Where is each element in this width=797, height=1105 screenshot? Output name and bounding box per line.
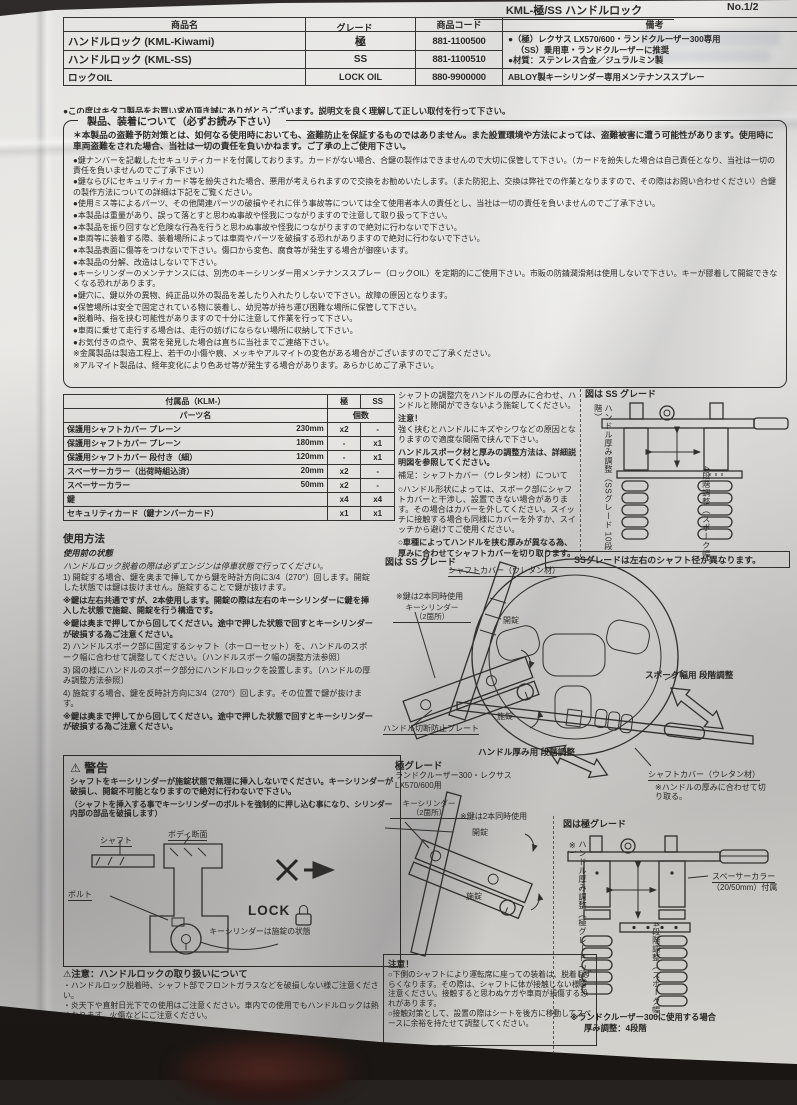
- part-name: スペーサーカラー（出荷時組込済）: [67, 467, 194, 476]
- bolt-label: ボルト: [68, 890, 92, 901]
- spacer-collar-label: スペーサーカラー （20/50mm）付属: [712, 872, 797, 892]
- notice-item: ＊本製品の盗難予防対策とは、如何なる使用時においても、盗難防止を保証するものでは…: [73, 130, 780, 153]
- lock-label-kiwami: 施錠: [466, 892, 482, 901]
- notice-item: ●本製品表面に傷等をつけないで下さい。傷口から変色、腐食等が発生する場合が御座い…: [73, 246, 780, 256]
- product-name: ロックOIL: [64, 69, 306, 86]
- usage-step: 1) 開錠する場合、鍵を奥まで挿してから鍵を時計方向に3/4（270°）回します…: [63, 573, 375, 594]
- warning-subtext: （シャフトを挿入する事でキーシリンダーのボルトを強制的に押し込む事になり、シリン…: [70, 800, 395, 820]
- shaft-cover-label-2: シャフトカバー（ウレタン材）: [648, 770, 760, 781]
- caution-handling-list: ・ハンドルロック脱着時、シャフト部でフロントガラスなどを破損しない様ご注意くださ…: [63, 981, 385, 1021]
- parts-col-kiwami: 極: [327, 395, 361, 409]
- parts-row: スペーサーカラー50mm x2 -: [64, 479, 395, 493]
- warning-text: シャフトをキーシリンダーが施錠状態で無理に挿入しないでください。キーシリンダーが…: [70, 777, 395, 798]
- notice-box-title: 製品、装着について（必ずお読み下さい）: [78, 113, 286, 128]
- parts-rows: 保護用シャフトカバー プレーン230mm x2 - 保護用シャフトカバー プレー…: [64, 423, 395, 521]
- ss-mechanism-diagram: [592, 397, 792, 555]
- notice-item: ※アルマイト製品は、経年変化により色あせ等が発生する場合があります。あらかじめご…: [73, 361, 780, 371]
- product-code: 881-1100500: [416, 32, 503, 51]
- product-remarks: ●（極）レクサス LX570/600・ランドクルーザー300専用 （SS）乗用車…: [503, 32, 797, 69]
- lock-label: LOCK: [248, 903, 290, 919]
- part-qty-ss: -: [361, 423, 395, 437]
- notice-item: ●鍵ならびにセキュリティカード等を紛失された場合、悪用が考えられますので交換をお…: [73, 177, 780, 197]
- kiwami-thickness-adjust-label: ハンドル厚み調整（極グレード 7段階※）: [566, 840, 587, 995]
- kiwami-mechanism-diagram: [560, 828, 790, 1020]
- cut-to-thickness-note: ※ハンドルの厚みに合わせて切り取る。: [655, 783, 773, 801]
- notice-item: ●本製品の分解、改造はしないで下さい。: [73, 258, 780, 268]
- notice-item: ●車両等に装着する際、装着場所によっては車両やパーツを破損する恐れがありますので…: [73, 234, 780, 244]
- part-name: セキュリティカード（鍵ナンバーカード）: [67, 509, 219, 518]
- notice-item: ●車両に乗せて走行する場合は、走行の妨げにならない場所に収納して下さい。: [73, 326, 780, 336]
- notice-item: ●本製品を振り回すなど危険な行為を行うと思わぬ事故や怪我につながりますので絶対に…: [73, 223, 780, 233]
- part-qty-ss: x1: [361, 437, 395, 451]
- photo-background: KML-極/SS ハンドルロック No.1/2 商品名 グレード 商品コード 備…: [0, 0, 797, 1080]
- usage-title: 使用方法: [63, 531, 375, 546]
- steering-wheel-diagram: [455, 552, 755, 770]
- product-remarks: ABLOY製キーシリンダー専用メンテナンススプレー: [503, 69, 797, 86]
- caution-handling-title: 注意：ハンドルロックの取り扱いについて: [71, 969, 247, 979]
- part-size: 20mm: [301, 466, 324, 475]
- parts-col-ss: SS: [361, 395, 395, 409]
- part-size: 50mm: [301, 480, 324, 489]
- part-qty-ss: x1: [361, 451, 395, 465]
- product-table: 商品名 グレード 商品コード 備考 ハンドルロック (KML-Kiwami) 極…: [63, 17, 797, 86]
- dark-object: [170, 1035, 360, 1105]
- product-grade: 極: [306, 32, 416, 51]
- body-section-label: ボディ断面: [168, 830, 207, 841]
- product-code: 880-9900000: [416, 69, 503, 86]
- attention-label: 注意！: [398, 414, 578, 424]
- thickness-adjust-label: ハンドル厚み用 段階調整: [478, 748, 575, 758]
- parts-row: セキュリティカード（鍵ナンバーカード） x1 x1: [64, 507, 395, 521]
- parts-table-title: 付属品（KLM-）: [64, 395, 328, 409]
- parts-row: 保護用シャフトカバー 段付き（細）120mm - x1: [64, 451, 395, 465]
- part-qty-ss: -: [361, 465, 395, 479]
- unlock-label-kiwami: 開錠: [472, 828, 488, 837]
- note-paragraph: ○ハンドル形状によっては、スポーク部にシャフトカバーと干渉し、設置できない場合が…: [398, 485, 578, 536]
- part-size: 230mm: [296, 424, 324, 433]
- part-qty-kiwami: -: [327, 437, 361, 451]
- part-qty-kiwami: x2: [327, 479, 361, 493]
- part-qty-kiwami: -: [327, 451, 361, 465]
- product-row: ハンドルロック (KML-Kiwami) 極 881-1100500 ●（極）レ…: [64, 32, 797, 51]
- kiwami-title: 極グレード: [395, 758, 443, 772]
- usage-step: ※鍵は奥まで押してから回してください。途中で押した状態で回すとキーシリンダーが破…: [63, 712, 375, 733]
- part-qty-kiwami: x2: [327, 423, 361, 437]
- column-header-code: 商品コード: [416, 18, 503, 32]
- column-header-remarks: 備考: [503, 18, 797, 32]
- notice-item: ●キーシリンダーのメンテナンスには、別売のキーシリンダー用メンテナンススプレー（…: [73, 269, 780, 289]
- caution-item: ・炎天下や直射日光下での使用はご注意ください。車内での使用でもハンドルロックは熱…: [63, 1001, 385, 1021]
- notice-item: ●使用ミス等によるパーツ、その他関連パーツの破損やそれに伴う事故等については全て…: [73, 199, 780, 209]
- note-paragraph: ハンドルスポーク材と厚みの調整方法は、詳細説明図を参照してください。: [398, 448, 578, 468]
- parts-col-qty: 個数: [327, 409, 394, 423]
- part-qty-ss: x4: [361, 493, 395, 507]
- kiwami-subtitle: ランドクルーザー300・レクサス LX570/600用: [395, 771, 523, 792]
- part-size: 120mm: [296, 452, 324, 461]
- usage-step: 3) 図の様にハンドルのスポーク部分にハンドルロックを設置します。〔ハンドルの厚…: [63, 666, 375, 687]
- note-paragraph: シャフトの調整穴をハンドルの厚みに合わせ、ハンドルと隙間ができないよう施錠してく…: [398, 391, 578, 411]
- product-name: ハンドルロック (KML-SS): [64, 51, 306, 69]
- notice-list: ＊本製品の盗難予防対策とは、如何なる使用時においても、盗難防止を保証するものでは…: [73, 130, 780, 373]
- part-name: 保護用シャフトカバー 段付き（細）: [67, 453, 197, 462]
- notice-item: ※金属製品は製造工程上、若干の小傷や痕、メッキやアルマイトの変色がある場合がござ…: [73, 349, 780, 359]
- adjustment-notes: シャフトの調整穴をハンドルの厚みに合わせ、ハンドルと隙間ができないよう施錠してく…: [398, 391, 578, 562]
- notice-item: ●お気付きの点や、異常を発見した場合は直ちに当社までご連絡下さい。: [73, 338, 780, 348]
- notice-item: ●保管場所は安全で固定されている物に装着し、幼児等が持ち運び困難な場所に保管して…: [73, 303, 780, 313]
- two-keys-note: ※鍵は2本同時使用: [396, 592, 463, 601]
- usage-precondition: ハンドルロック脱着の際は必ずエンジンは停車状態で行ってください。: [63, 560, 375, 572]
- part-qty-kiwami: x4: [327, 493, 361, 507]
- usage-step: 4) 施錠する場合、鍵を反時計方向に3/4（270°）回します。その位置で鍵が抜…: [63, 689, 375, 710]
- supplement-title: 補足：シャフトカバー（ウレタン材）について: [398, 471, 578, 481]
- spoke-width-adjust-label: スポーク幅用 段階調整: [645, 671, 733, 681]
- part-qty-ss: x1: [361, 507, 395, 521]
- part-qty-ss: -: [361, 479, 395, 493]
- part-name: 鍵: [67, 495, 75, 504]
- caution-item: ・ハンドルロック脱着時、シャフト部でフロントガラスなどを破損しない様ご注意くださ…: [63, 981, 385, 1001]
- notice-item: ●鍵穴に、鍵以外の異物、純正品以外の製品を差したり入れたりしないで下さい。故障の…: [73, 291, 780, 301]
- product-name: ハンドルロック (KML-Kiwami): [64, 32, 306, 51]
- parts-table: 付属品（KLM-） 極 SS パーツ名 個数 保護用シャフトカバー プレーン23…: [63, 394, 395, 521]
- page-number: No.1/2: [727, 1, 759, 13]
- parts-col-name: パーツ名: [64, 409, 328, 423]
- parts-row: 保護用シャフトカバー プレーン230mm x2 -: [64, 423, 395, 437]
- ss-thickness-adjust-label: ハンドル厚み調整（SSグレード 10段階）: [592, 404, 613, 554]
- part-name: 保護用シャフトカバー プレーン: [67, 439, 181, 448]
- caution-handling-section: ⚠注意：ハンドルロックの取り扱いについて ・ハンドルロック脱着時、シャフト部でフ…: [63, 966, 385, 1021]
- part-name: スペーサーカラー: [67, 481, 130, 490]
- shaft-label: シャフト: [100, 836, 132, 847]
- two-keys-note-kiwami: ※鍵は2本同時使用: [460, 812, 527, 821]
- usage-step: ※鍵は奥まで押してから回してください。途中で押した状態で回すとキーシリンダーが破…: [63, 619, 375, 640]
- notice-box: 製品、装着について（必ずお読み下さい） ＊本製品の盗難予防対策とは、如何なる使用…: [63, 120, 787, 388]
- notice-item: ●鍵ナンバーを記載したセキュリティカードを付属しております。カードがない場合、合…: [73, 156, 780, 176]
- parts-row: 鍵 x4 x4: [64, 493, 395, 507]
- column-header-grade: グレード: [306, 18, 416, 32]
- cylinder-state-label: キーシリンダーは施錠の状態: [200, 928, 320, 937]
- divider: [580, 389, 581, 557]
- usage-steps: 1) 開錠する場合、鍵を奥まで挿してから鍵を時計方向に3/4（270°）回します…: [63, 573, 375, 733]
- product-row: ロックOIL LOCK OIL 880-9900000 ABLOY製キーシリンダ…: [64, 69, 797, 86]
- product-code: 881-1100510: [416, 51, 503, 69]
- usage-precondition-title: 使用前の状態: [63, 547, 375, 559]
- usage-section: 使用方法 使用前の状態 ハンドルロック脱着の際は必ずエンジンは停車状態で行ってく…: [63, 531, 375, 735]
- key-cylinder-label-kiwami: キーシリンダー（2箇所）: [390, 800, 468, 819]
- landcruiser-note: ※ランドクルーザー300に使用する場合 厚み調整：4段階: [570, 1012, 790, 1034]
- product-grade: LOCK OIL: [306, 69, 416, 86]
- paper-sheet: KML-極/SS ハンドルロック No.1/2 商品名 グレード 商品コード 備…: [0, 0, 797, 1080]
- usage-step: 2) ハンドルスポーク部に固定するシャフト（ホーローセット）を、ハンドルのスポー…: [63, 642, 375, 663]
- notice-item: ●本製品は重量があり、誤って落とすと思わぬ事故や怪我につながりますので注意して取…: [73, 211, 780, 221]
- part-name: 保護用シャフトカバー プレーン: [67, 425, 181, 434]
- column-header-name: 商品名: [64, 18, 306, 32]
- part-qty-kiwami: x2: [327, 465, 361, 479]
- part-size: 180mm: [296, 438, 324, 447]
- warning-triangle-icon: ⚠: [70, 761, 81, 775]
- product-grade: SS: [306, 51, 416, 69]
- parts-row: 保護用シャフトカバー プレーン180mm - x1: [64, 437, 395, 451]
- notice-item: ●脱着時、指を挟む可能性がありますので十分に注意して作業を行って下さい。: [73, 314, 780, 324]
- parts-row: スペーサーカラー（出荷時組込済）20mm x2 -: [64, 465, 395, 479]
- usage-step: ※鍵は左右共通ですが、2本使用します。開錠の際は左右のキーシリンダーに鍵を挿入し…: [63, 596, 375, 617]
- note-paragraph: 強く挟むとハンドルにキズやシワなどの原因となりますので適度な間隔で挟んで下さい。: [398, 425, 578, 445]
- warning-title: 警告: [84, 761, 108, 775]
- part-qty-kiwami: x1: [327, 507, 361, 521]
